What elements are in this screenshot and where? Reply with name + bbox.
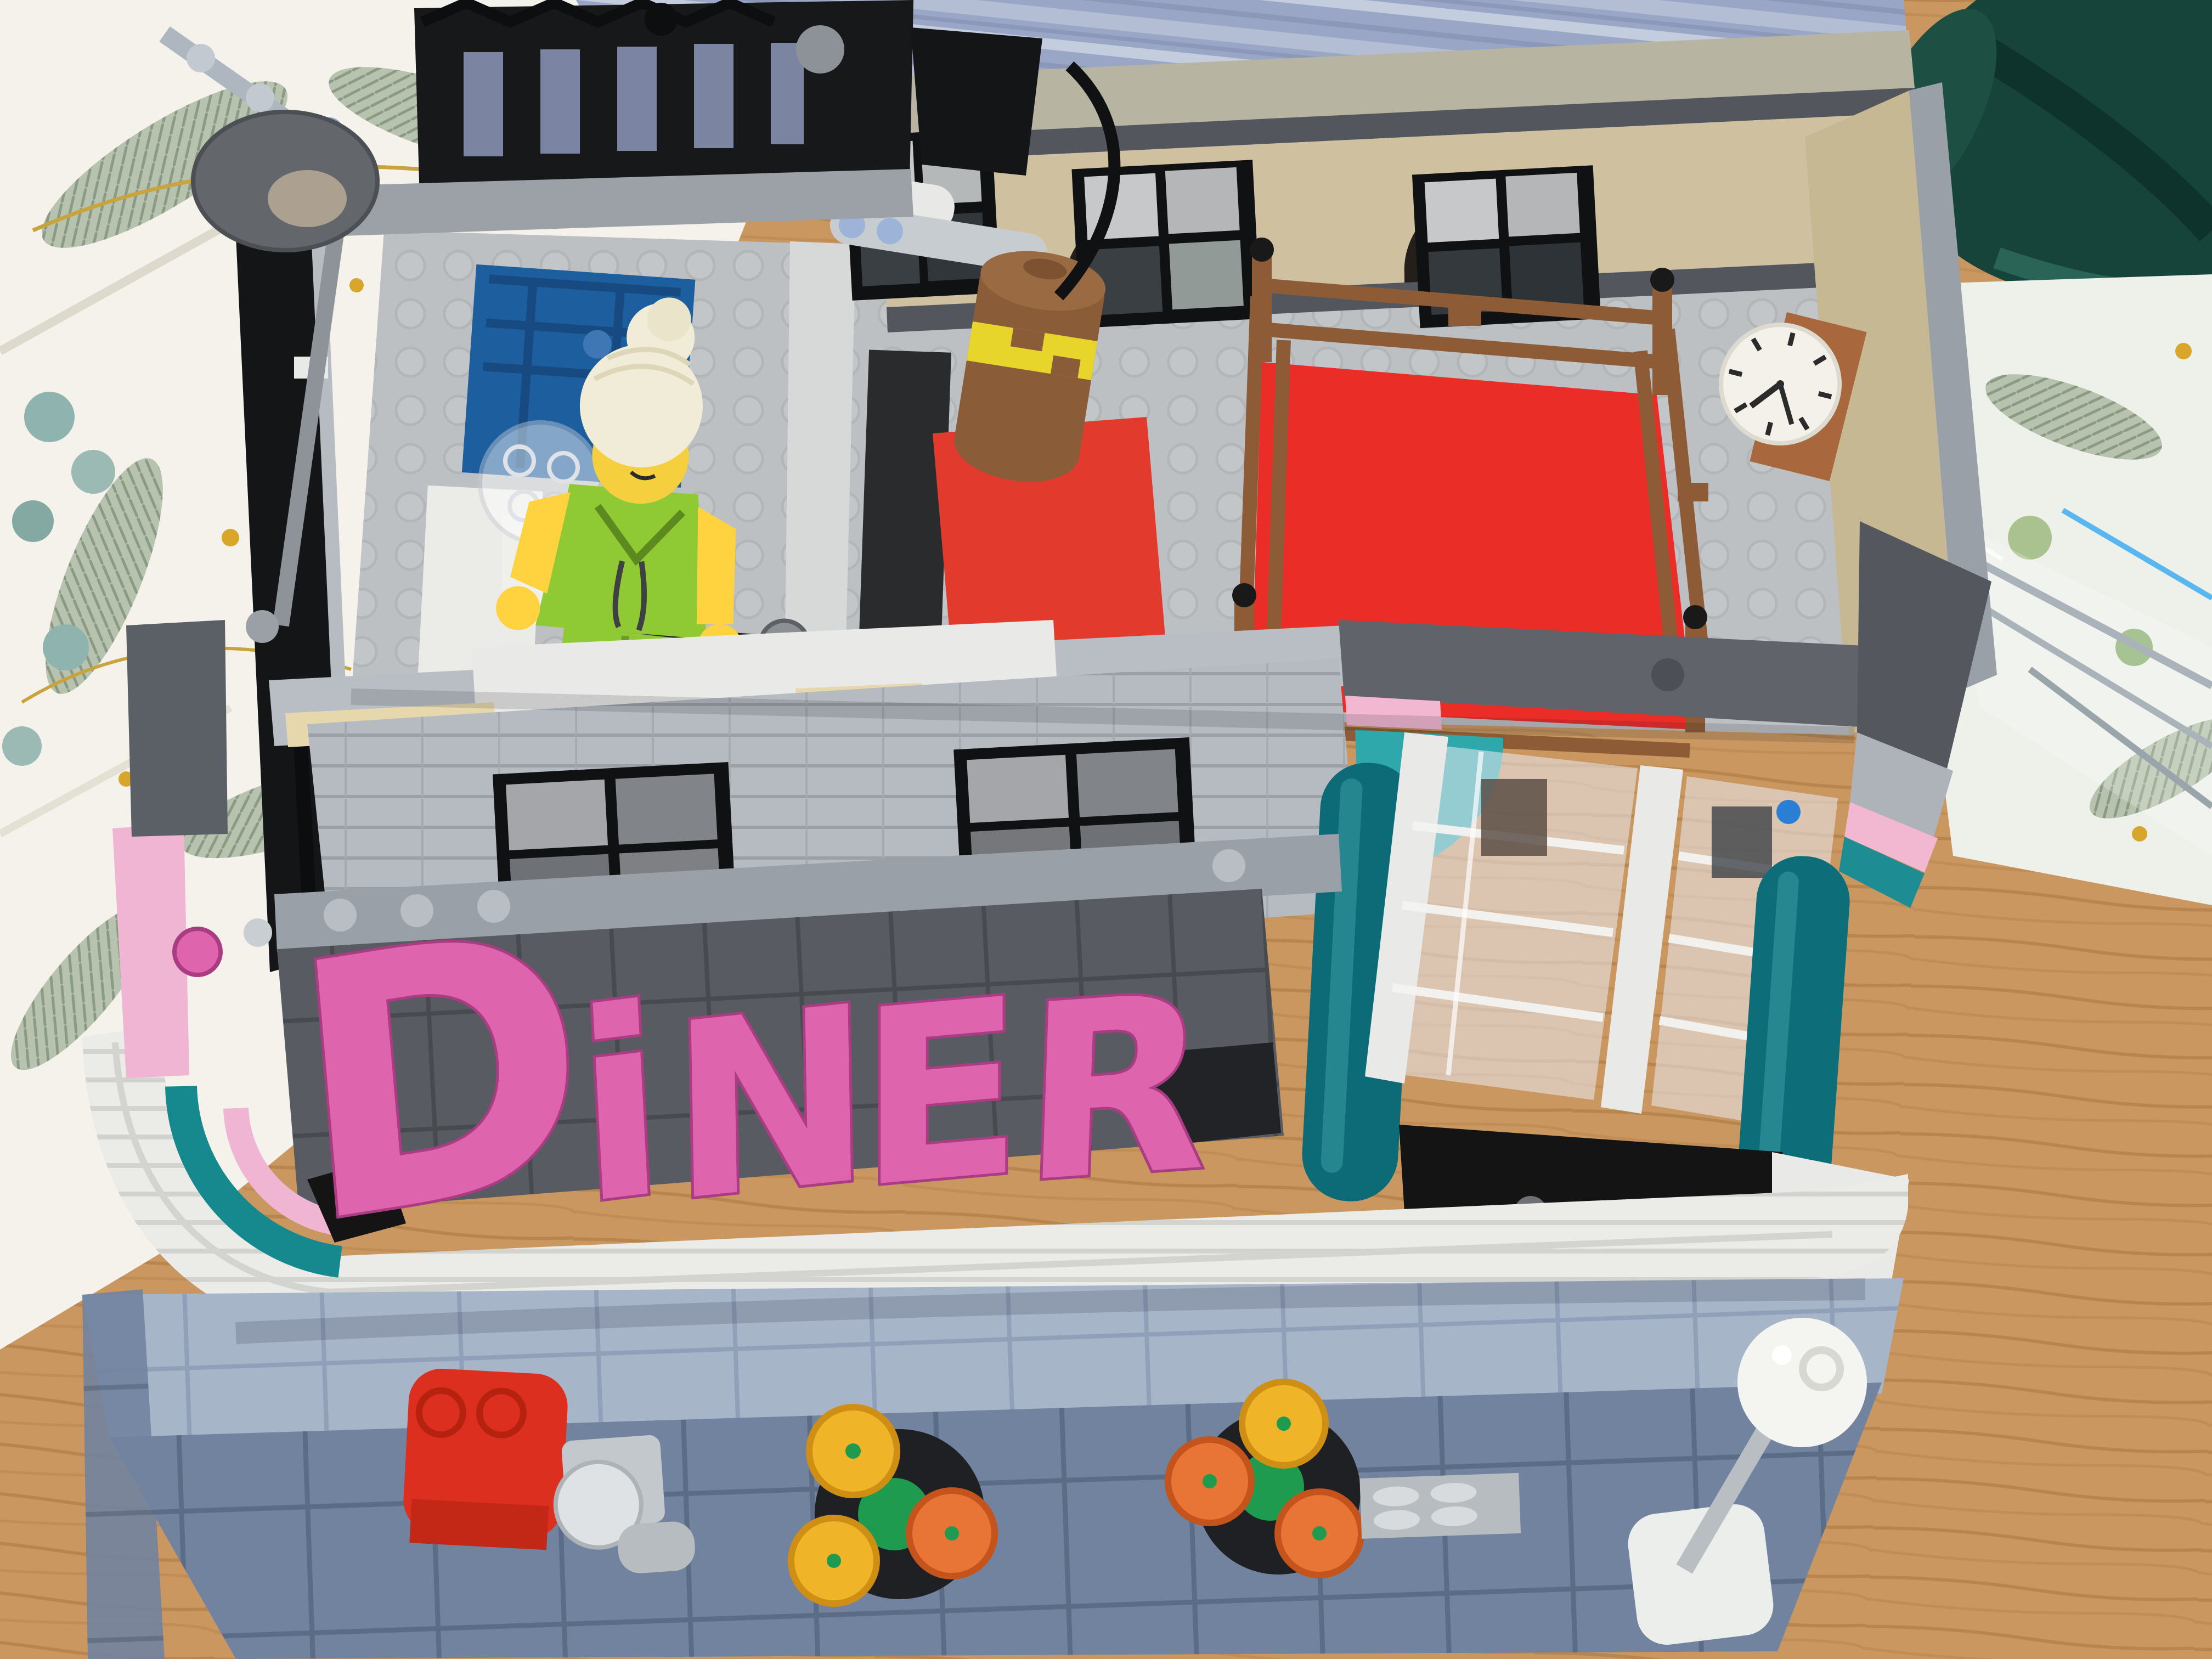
- sign-letter-r: R: [1018, 941, 1214, 1237]
- sign-letter-i: i: [569, 951, 673, 1262]
- sign-letter-e: E: [859, 946, 1023, 1242]
- storm-grate: [1359, 1473, 1521, 1539]
- photo-canvas: D i N E R: [0, 0, 2212, 1659]
- sign-letter-d: D: [279, 850, 602, 1304]
- red-alarm-box: [401, 1367, 569, 1551]
- room-divider-wall: [785, 241, 856, 686]
- glass-panel-left: [1365, 732, 1638, 1100]
- doorway-gap: [859, 350, 951, 649]
- sign-pin: [174, 929, 221, 975]
- black-bracket: [911, 27, 1042, 176]
- scene-svg: D i N E R: [0, 0, 2212, 1659]
- sign-letter-n: N: [668, 953, 874, 1256]
